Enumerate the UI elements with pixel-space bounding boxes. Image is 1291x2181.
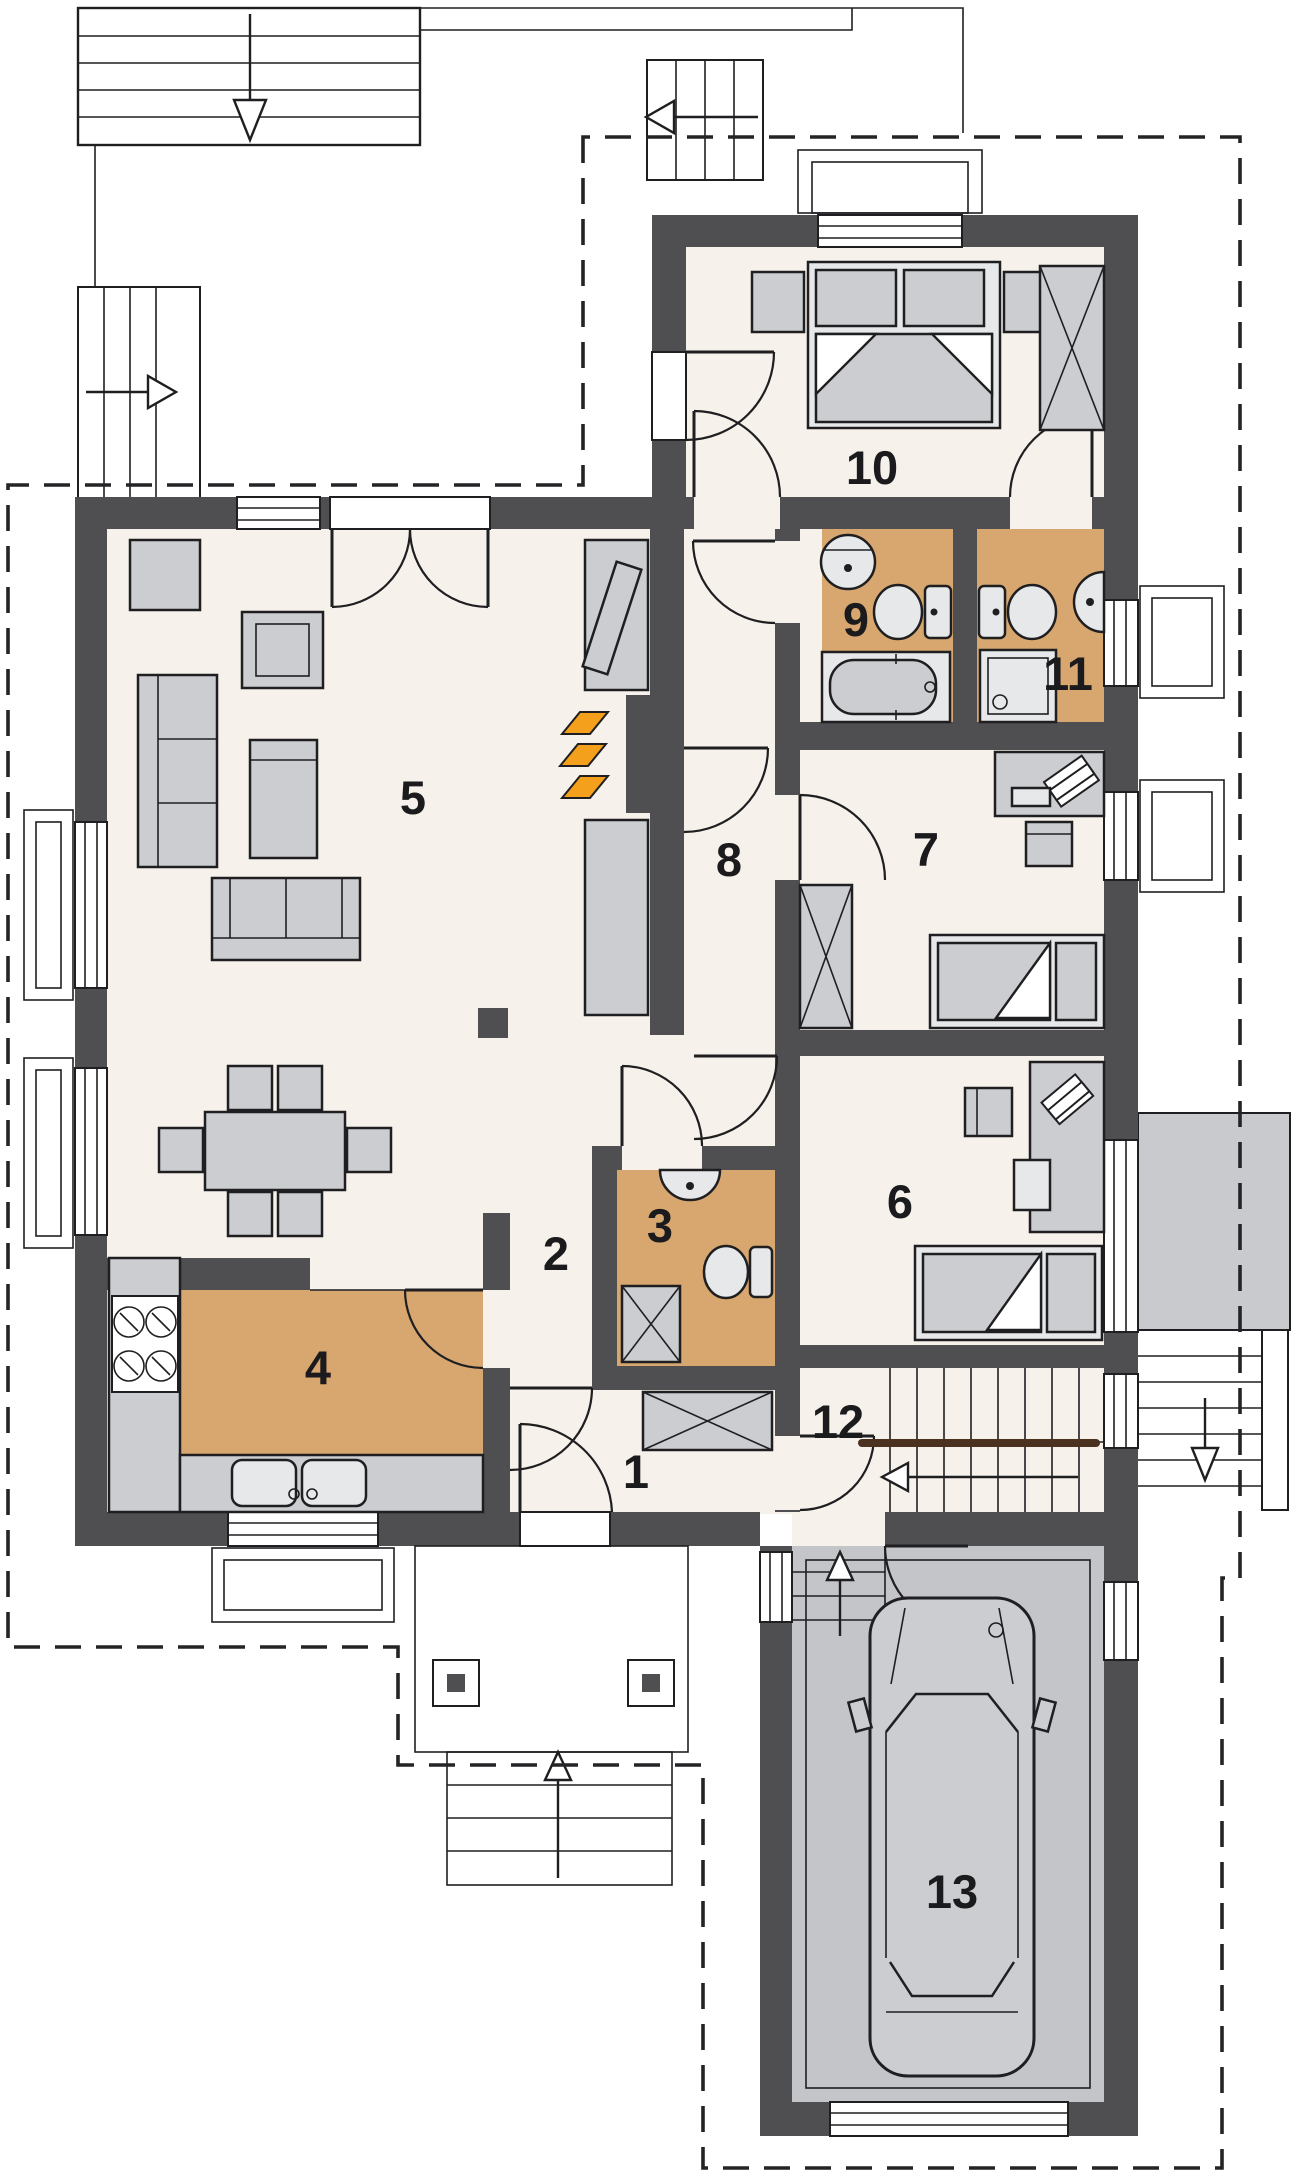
- side-table: [130, 540, 200, 610]
- window-garage: [1104, 1582, 1138, 1660]
- wardrobe: [1040, 266, 1104, 430]
- window-room7: [1104, 792, 1138, 880]
- exterior-stairs-right: [1138, 1330, 1288, 1510]
- room-label-6: 6: [887, 1175, 913, 1228]
- room-label-1: 1: [623, 1445, 649, 1498]
- single-bed: [915, 1246, 1102, 1340]
- stairs-down-arrow-icon: [1192, 1398, 1218, 1480]
- room-label-5: 5: [400, 771, 426, 824]
- wardrobe: [800, 885, 852, 1028]
- room-label-8: 8: [716, 833, 742, 886]
- terrace-right: [1138, 1113, 1290, 1510]
- porch: [415, 1546, 688, 1885]
- porch-column: [628, 1660, 674, 1706]
- chair: [965, 1088, 1012, 1136]
- washbasin: [821, 535, 875, 589]
- window-sill-north: [798, 150, 982, 213]
- single-bed: [930, 935, 1104, 1028]
- room-label-4: 4: [305, 1341, 331, 1394]
- chaise: [250, 740, 317, 858]
- window-north: [818, 215, 962, 247]
- window-sill-left-2: [24, 1058, 73, 1248]
- corner-sofa: [138, 675, 217, 867]
- double-bed: [808, 262, 1000, 428]
- room-label-13: 13: [926, 1865, 978, 1918]
- window-sill-room7: [1140, 780, 1224, 892]
- window-livingroom-left-1: [75, 822, 107, 988]
- room-label-9: 9: [843, 593, 869, 646]
- window-sill-bath11: [1140, 586, 1224, 698]
- media-cabinet: [585, 820, 648, 1015]
- stove: [112, 1296, 178, 1392]
- window-stairs12: [1104, 1374, 1138, 1448]
- garage-side-door[interactable]: [760, 1552, 792, 1622]
- nightstand: [752, 272, 804, 332]
- window-room6-terrace: [1104, 1140, 1138, 1332]
- entry-furniture: [643, 1392, 772, 1450]
- dining-table: [205, 1112, 345, 1190]
- chair: [1026, 822, 1072, 866]
- wardrobe: [643, 1392, 772, 1450]
- closet: [622, 1286, 680, 1362]
- window-livingroom-top: [237, 497, 320, 529]
- room-label-11: 11: [1043, 647, 1093, 700]
- toilet: [704, 1246, 772, 1298]
- room-label-3: 3: [647, 1199, 673, 1252]
- window-bath11: [1104, 600, 1138, 686]
- floor-plan-page: 1 2 3 4 5 6 7 8 9 10 11 12 13: [0, 0, 1291, 2181]
- porch-column: [433, 1660, 479, 1706]
- armchair: [242, 612, 323, 688]
- room-label-10: 10: [846, 441, 898, 494]
- column: [478, 1008, 508, 1038]
- kitchen-floor: [180, 1290, 483, 1455]
- room-label-12: 12: [812, 1395, 864, 1448]
- window-sill-left-1: [24, 810, 73, 1000]
- room-label-7: 7: [913, 823, 939, 876]
- toilet: [979, 585, 1056, 639]
- sofa: [212, 878, 360, 960]
- stairs-up-arrow-icon: [545, 1752, 571, 1878]
- keyboard: [1012, 788, 1050, 806]
- window-sill-kitchen: [212, 1548, 394, 1622]
- window-kitchen: [228, 1512, 378, 1546]
- toilet: [874, 585, 951, 639]
- room-label-2: 2: [543, 1227, 569, 1280]
- drawer-unit: [1014, 1160, 1050, 1210]
- floor-plan-svg: 1 2 3 4 5 6 7 8 9 10 11 12 13: [0, 0, 1291, 2181]
- car: [848, 1598, 1055, 2076]
- bathtub: [822, 652, 950, 722]
- porch-steps: [447, 1752, 672, 1885]
- garage-gate[interactable]: [830, 2102, 1068, 2136]
- window-livingroom-left-2: [75, 1068, 107, 1235]
